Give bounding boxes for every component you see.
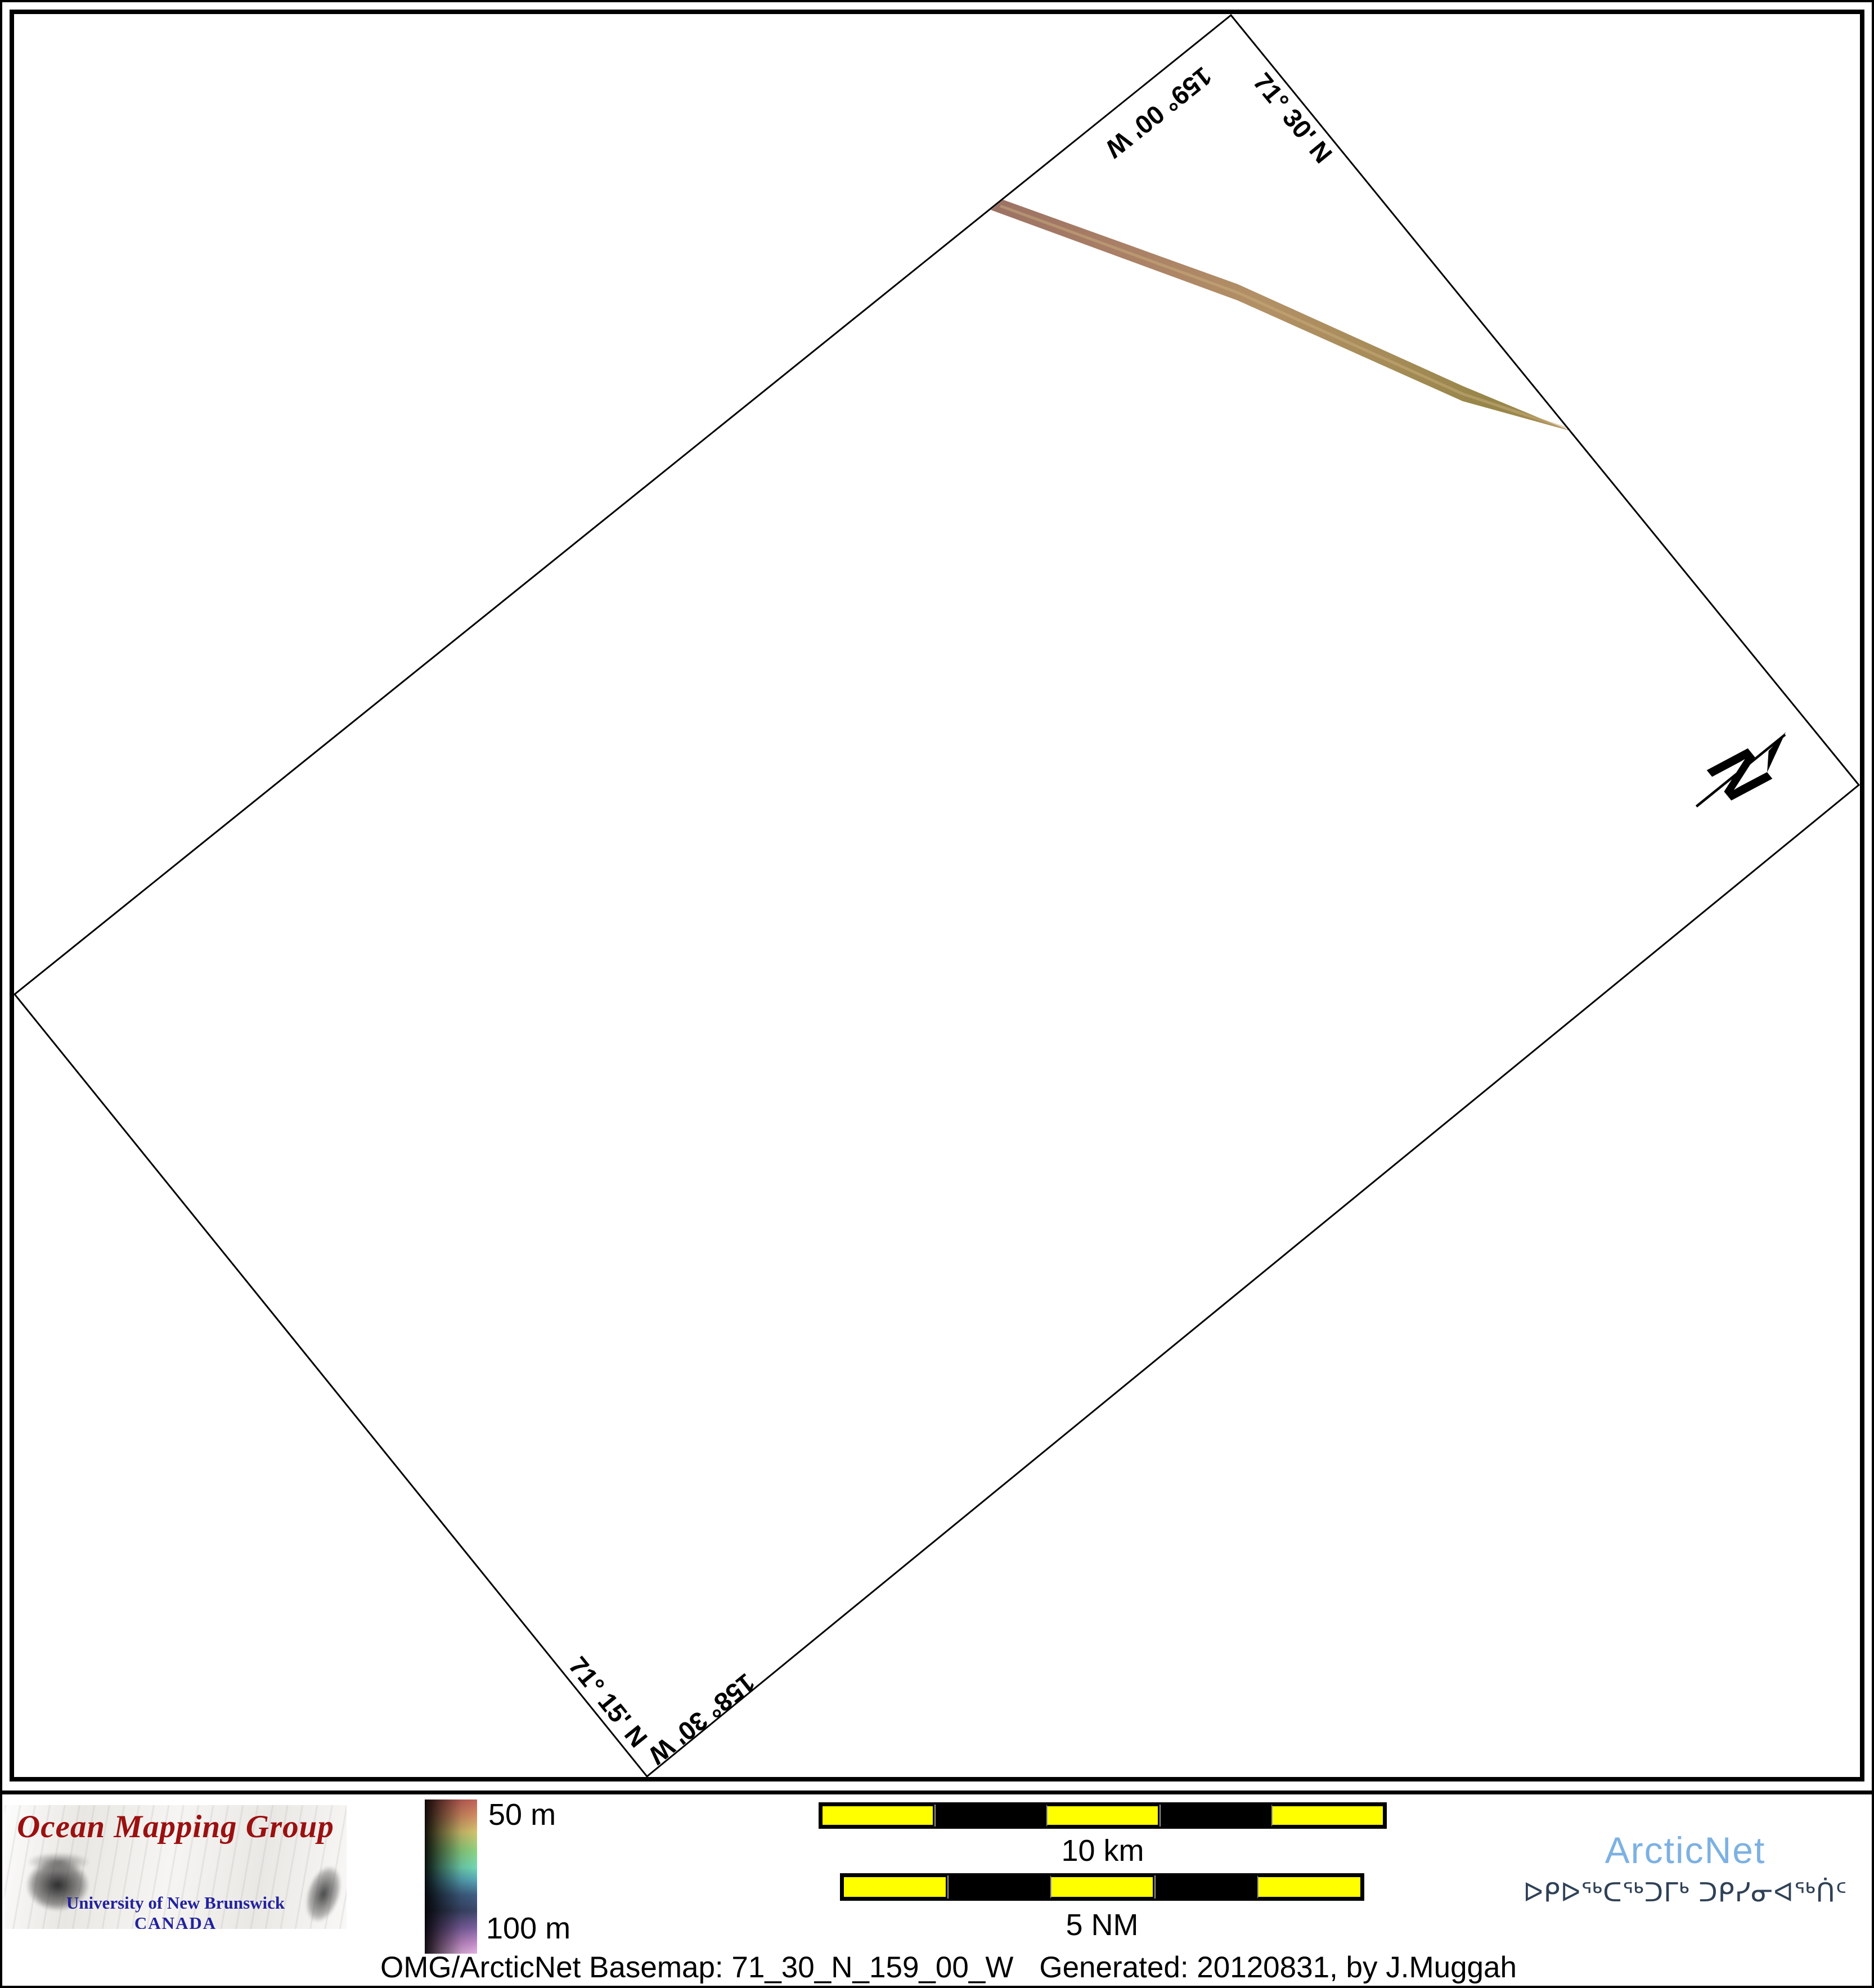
omg-logo-title: Ocean Mapping Group [5, 1809, 347, 1845]
arcticnet-inuktitut: ᐅᑭᐅᖅᑕᖅᑐᒥᒃ ᑐᑭᓯᓂᐊᖅᑏᑦ [1496, 1877, 1874, 1908]
arcticnet-name: ArcticNet [1496, 1830, 1874, 1870]
scalebar-segment [947, 1875, 1050, 1899]
scalebar-10km [819, 1802, 1387, 1829]
omg-logo: Ocean Mapping Group University of New Br… [5, 1805, 347, 1929]
caption-generated: Generated: 20120831, by J.Muggah [1039, 1951, 1517, 1984]
sheet-caption: OMG/ArcticNet Basemap: 71_30_N_159_00_WG… [380, 1950, 1517, 1985]
scalebar-segment [1271, 1805, 1385, 1827]
scalebar-segment [821, 1805, 934, 1827]
scalebar-segment [1050, 1875, 1155, 1899]
arcticnet-logo: ArcticNet ᐅᑭᐅᖅᑕᖅᑐᒥᒃ ᑐᑭᓯᓂᐊᖅᑏᑦ [1496, 1830, 1874, 1908]
scalebar-segment [934, 1805, 1046, 1827]
colorbar-min-label: 50 m [488, 1797, 556, 1832]
caption-basemap: OMG/ArcticNet Basemap: 71_30_N_159_00_W [380, 1951, 1013, 1984]
scalebar-5nm-label: 5 NM [840, 1908, 1364, 1942]
scalebar-segment [1046, 1805, 1160, 1827]
scalebar-5nm [840, 1873, 1364, 1901]
depth-colorbar [425, 1799, 477, 1954]
footer-divider [2, 1790, 1872, 1794]
scalebar-segment [1154, 1875, 1257, 1899]
basemap-sheet: 159° 00' W 71° 30' N 71° 15' N 158° 30' … [0, 0, 1874, 1988]
scalebar-10km-label: 10 km [819, 1833, 1387, 1868]
scalebar-segment [1257, 1875, 1362, 1899]
scalebar-segment [842, 1875, 947, 1899]
colorbar-max-label: 100 m [486, 1911, 570, 1946]
omg-logo-country: CANADA [5, 1913, 347, 1929]
map-frame [10, 10, 1864, 1781]
omg-logo-institution: University of New Brunswick [5, 1893, 347, 1913]
scalebar-segment [1160, 1805, 1271, 1827]
